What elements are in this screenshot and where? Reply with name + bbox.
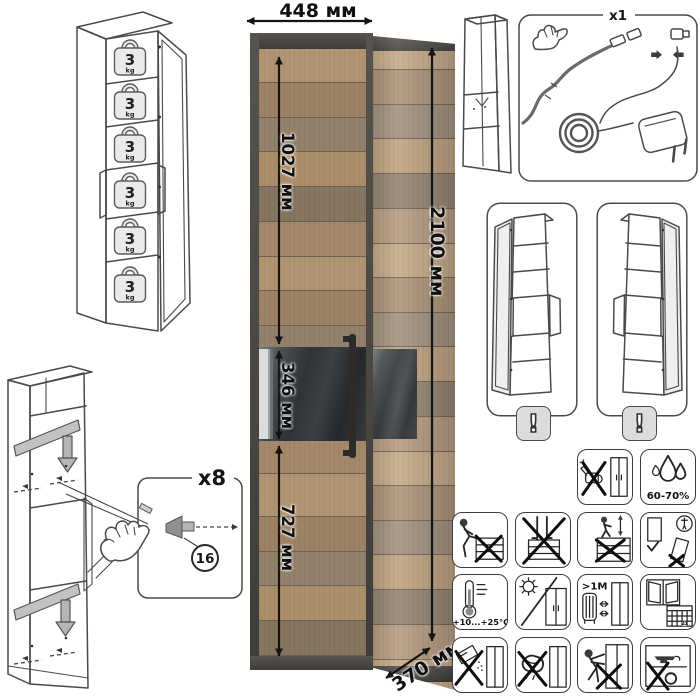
warning-badge: ! <box>622 406 657 441</box>
svg-text:60-70%: 60-70% <box>646 491 688 502</box>
care-icons-grid: 60-70% <box>452 449 696 693</box>
no-standing-icon <box>515 512 571 568</box>
no-climbing-icon <box>577 512 633 568</box>
temperature-range-icon: +10...+25°C <box>452 574 508 630</box>
insert-arrow-icon <box>56 600 75 636</box>
no-abrasive-icon <box>452 637 508 693</box>
hand-icon <box>88 503 152 578</box>
no-overload-icon <box>640 637 696 693</box>
shelf-pin-assembly-diagram: 16 x8 <box>0 358 260 700</box>
width-dimension-label: 448 мм <box>258 0 378 22</box>
hand-icon <box>533 26 567 50</box>
no-pushing-icon <box>577 637 633 693</box>
mini-cabinet-diagram <box>463 15 511 173</box>
svg-text:kg: kg <box>126 154 135 162</box>
svg-text:21: 21 <box>681 621 688 627</box>
level-adjust-icon <box>640 512 696 568</box>
upper-section-dimension-label: 1027 мм <box>278 115 297 227</box>
door-option-left-panel <box>486 202 578 417</box>
weight-icon: 3kg <box>115 173 146 208</box>
no-watering-icon <box>577 449 633 505</box>
humidity-icon: 60-70% <box>640 449 696 505</box>
led-kit-quantity: x1 <box>609 8 627 24</box>
weight-icon: 3kg <box>115 267 146 302</box>
no-sitting-icon <box>452 512 508 568</box>
exclamation-icon: ! <box>634 411 645 436</box>
warning-badge: ! <box>516 406 551 441</box>
pin-quantity: x8 <box>198 466 226 490</box>
door-option-right-panel <box>596 202 688 417</box>
height-dimension-label: 2100 мм <box>426 186 448 316</box>
part-number: 16 <box>196 551 215 567</box>
heater-distance-icon: >1М <box>577 574 633 630</box>
no-sunlight-icon <box>515 574 571 630</box>
weight-icon: 3kg <box>115 84 146 119</box>
led-kit-panel: x1 <box>455 3 700 188</box>
shelf-load-diagram: 3kg 3kg 3kg 3kg 3kg 3kg <box>55 5 205 360</box>
insert-arrow-icon <box>58 436 77 472</box>
glass-section-dimension-label: 346 мм <box>278 350 297 442</box>
weight-icon: 3kg <box>115 40 146 75</box>
svg-text:kg: kg <box>126 111 135 119</box>
ventilation-icon: 21 <box>640 574 696 630</box>
svg-text:kg: kg <box>126 246 135 254</box>
svg-text:kg: kg <box>126 67 135 75</box>
weight-icon: 3kg <box>115 219 146 254</box>
svg-text:+10...+25°C: +10...+25°C <box>453 617 507 627</box>
svg-text:>1М: >1М <box>582 581 608 592</box>
no-wet-cloth-icon <box>515 637 571 693</box>
shelf-pin-part-icon <box>166 516 238 538</box>
furniture-instruction-sheet: 3kg 3kg 3kg 3kg 3kg 3kg <box>0 0 700 700</box>
power-adapter-icon <box>560 47 692 167</box>
svg-text:kg: kg <box>126 200 135 208</box>
weight-icon: 3kg <box>115 127 146 162</box>
pin-callout-panel <box>138 478 242 598</box>
assembly-cabinet-drawing <box>8 366 92 688</box>
dimension-annotations <box>240 0 470 700</box>
lower-section-dimension-label: 727 мм <box>278 488 297 588</box>
exclamation-icon: ! <box>528 411 539 436</box>
svg-text:kg: kg <box>126 294 135 302</box>
